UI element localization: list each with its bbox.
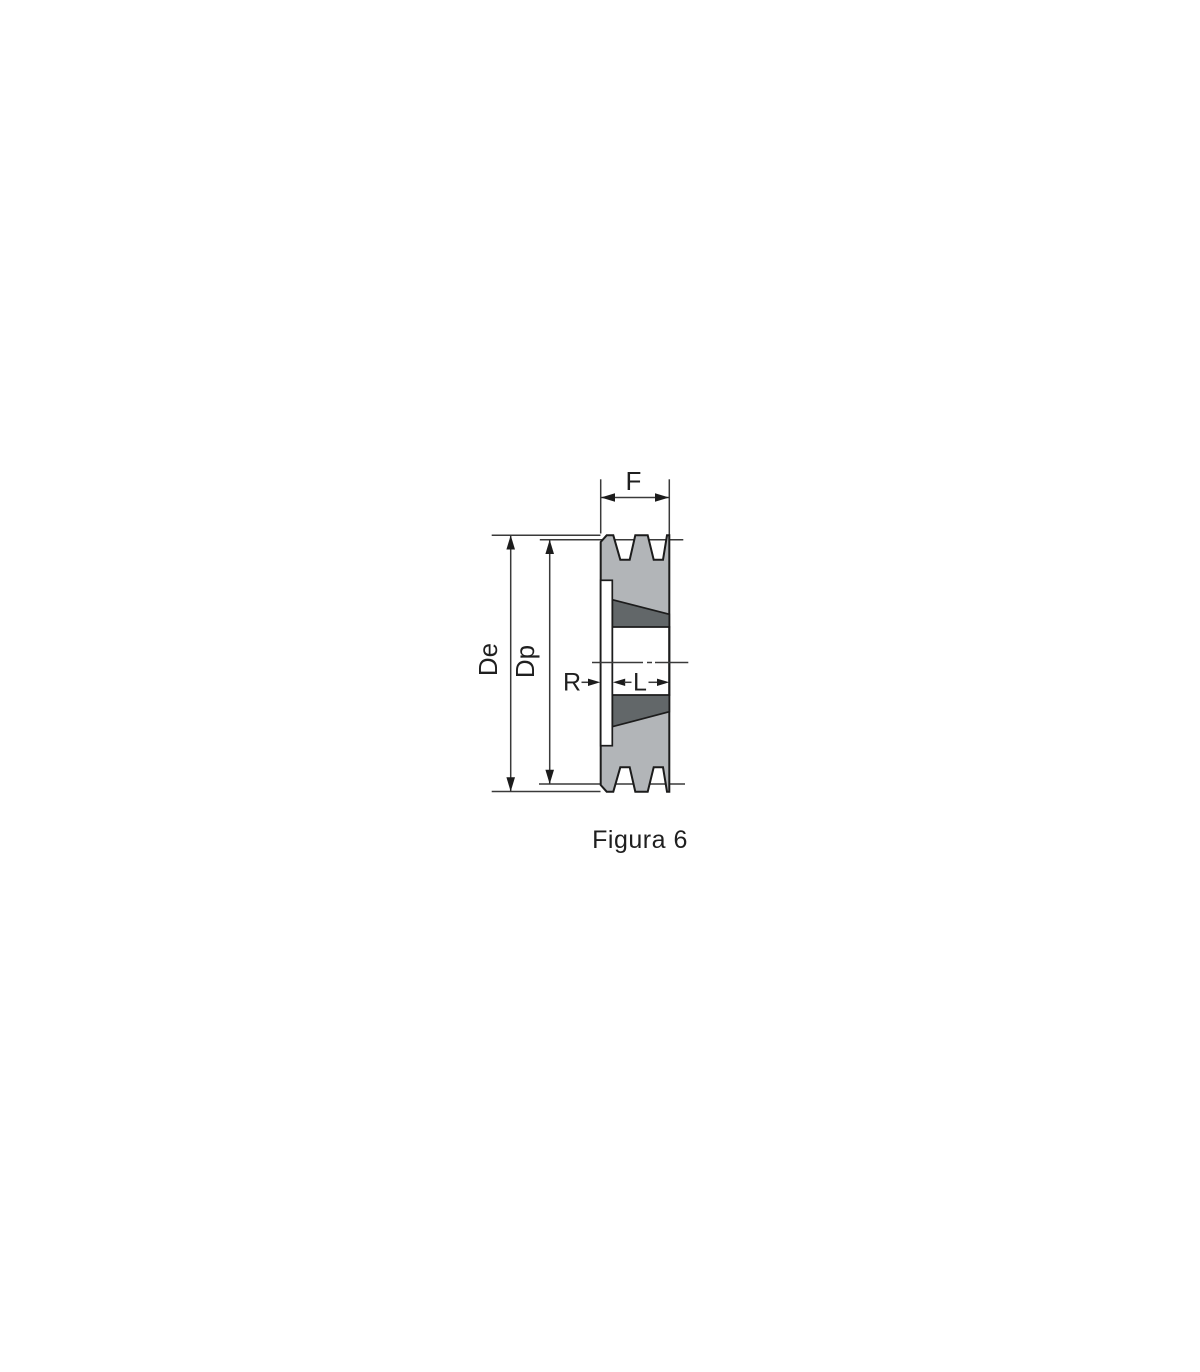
de-dimension-label: De xyxy=(473,643,503,676)
figure-caption: Figura 6 xyxy=(592,826,688,854)
f-arrow-left-icon xyxy=(601,493,615,502)
r-dimension-label: R xyxy=(563,669,581,697)
page: F De Dp R L Figura 6 xyxy=(0,0,1200,1372)
pulley-cross-section-figure: F De Dp R L Figura 6 xyxy=(0,0,1200,1372)
de-arrow-down-icon xyxy=(506,777,515,791)
dp-dimension-label: Dp xyxy=(510,645,540,678)
r-arrow-icon xyxy=(588,679,600,686)
dp-arrow-up-icon xyxy=(545,540,554,554)
f-dimension-label: F xyxy=(626,466,642,496)
f-arrow-right-icon xyxy=(655,493,669,502)
dp-arrow-down-icon xyxy=(545,770,554,784)
l-dimension-label: L xyxy=(633,669,647,697)
de-arrow-up-icon xyxy=(506,535,515,549)
